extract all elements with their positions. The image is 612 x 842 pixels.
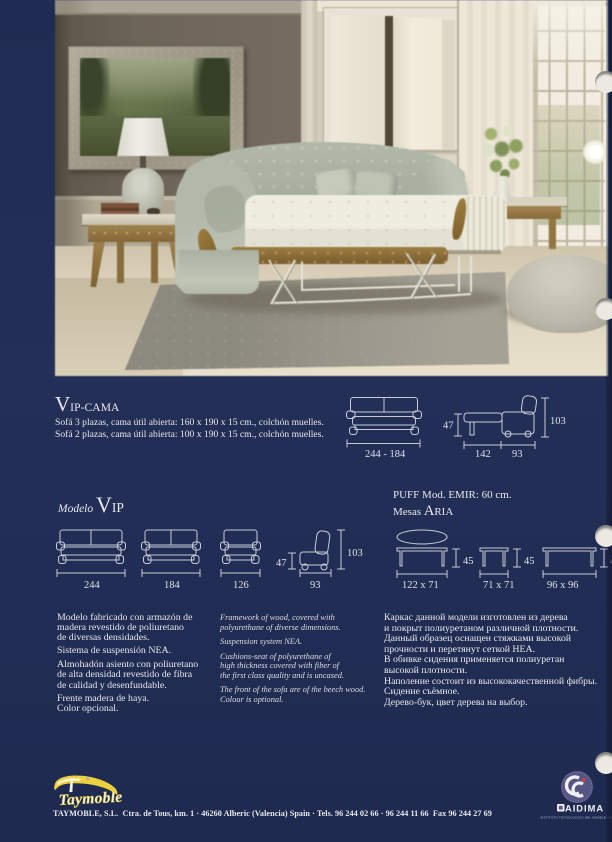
svg-text:INSTITUTO TECNOLOGICO DEL MUEB: INSTITUTO TECNOLOGICO DEL MUEBLE Y AFINE… [540,816,612,820]
svg-text:126: 126 [233,580,249,591]
svg-text:103: 103 [347,548,363,559]
svg-text:45: 45 [463,556,474,567]
svg-text:Taymoble: Taymoble [58,789,123,809]
svg-text:93: 93 [310,580,321,591]
svg-text:142: 142 [475,449,491,460]
svg-text:71 x 71: 71 x 71 [483,580,515,591]
svg-text:103: 103 [550,416,566,427]
svg-text:47: 47 [443,421,454,432]
svg-text:93: 93 [512,449,523,460]
svg-text:184: 184 [164,580,181,591]
svg-text:96 x 96: 96 x 96 [547,580,579,591]
svg-text:122 x 71: 122 x 71 [402,580,439,591]
svg-text:244: 244 [84,580,101,591]
svg-text:AIDIMA: AIDIMA [565,804,604,814]
svg-text:244 - 184: 244 - 184 [365,449,406,460]
svg-text:47: 47 [276,558,287,569]
svg-text:45: 45 [524,556,535,567]
